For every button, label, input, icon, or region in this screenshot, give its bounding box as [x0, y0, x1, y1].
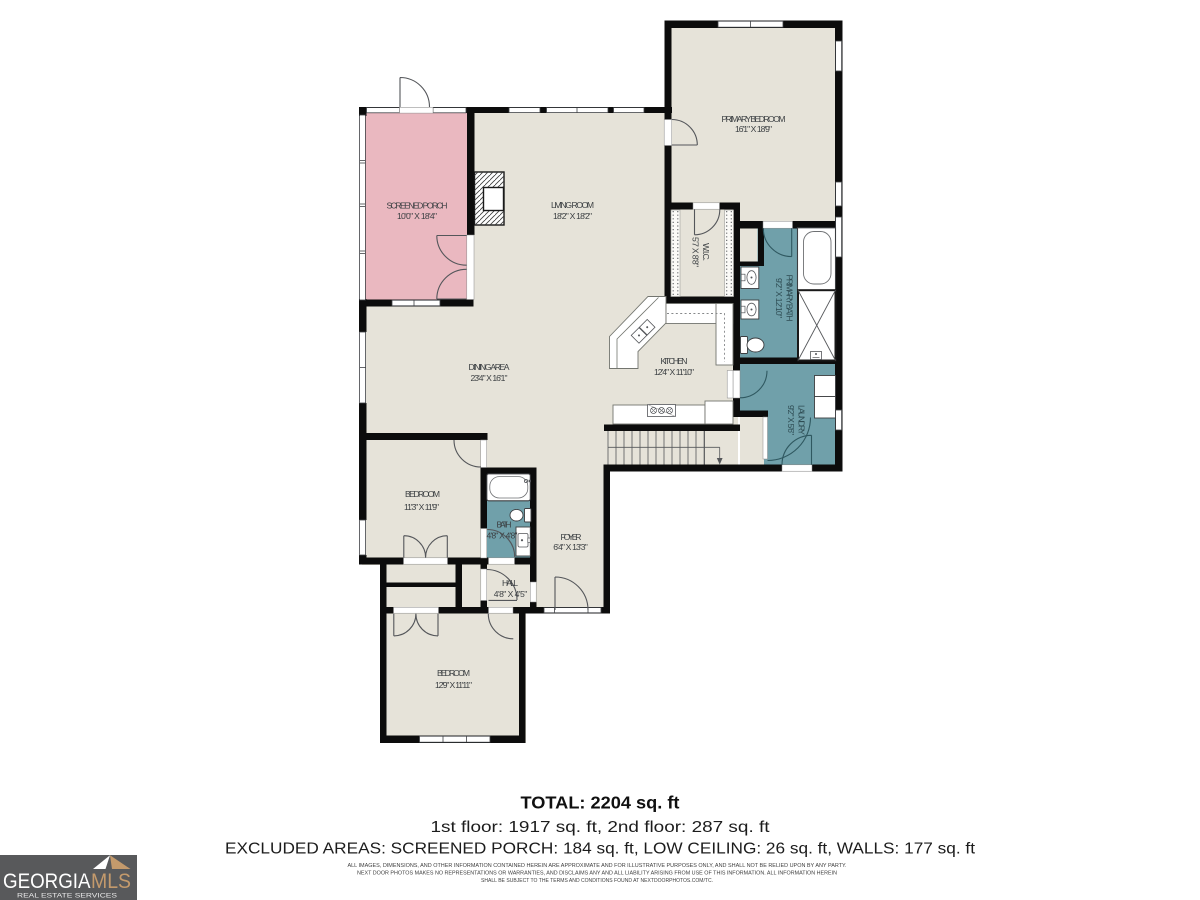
svg-text:NEXT DOOR PHOTOS MAKES NO REPR: NEXT DOOR PHOTOS MAKES NO REPRESENTATION… — [357, 871, 837, 877]
svg-text:16'1" X 18'9": 16'1" X 18'9" — [735, 124, 772, 134]
svg-text:SHALL BE SUBJECT TO THE TERMS: SHALL BE SUBJECT TO THE TERMS AND CONDIT… — [481, 878, 713, 884]
svg-text:9'2" X 12'10": 9'2" X 12'10" — [774, 278, 784, 318]
svg-text:4'8" X 4'5": 4'8" X 4'5" — [494, 589, 528, 599]
svg-text:6'4" X 13'3": 6'4" X 13'3" — [553, 542, 588, 552]
svg-text:LAUNDRY: LAUNDRY — [797, 405, 807, 435]
svg-text:KITCHEN: KITCHEN — [661, 356, 688, 366]
svg-text:BATH: BATH — [497, 520, 512, 530]
svg-text:SCREENED PORCH: SCREENED PORCH — [387, 201, 448, 211]
svg-text:PRIMARY BEDROOM: PRIMARY BEDROOM — [722, 114, 786, 124]
svg-text:MLS: MLS — [91, 869, 131, 893]
svg-text:PRIMARY BATH: PRIMARY BATH — [785, 275, 795, 322]
svg-text:5'7 X 8'8": 5'7 X 8'8" — [690, 237, 700, 267]
svg-text:REAL ESTATE SERVICES: REAL ESTATE SERVICES — [17, 893, 117, 900]
svg-text:18'2" X 18'2": 18'2" X 18'2" — [553, 211, 592, 221]
svg-text:9'2" X 5'6": 9'2" X 5'6" — [786, 405, 796, 435]
svg-text:BEDROOM: BEDROOM — [405, 489, 440, 499]
svg-text:23'4" X 16'1": 23'4" X 16'1" — [471, 373, 508, 383]
svg-text:BEDROOM: BEDROOM — [437, 668, 470, 678]
svg-text:TOTAL: 2204 sq. ft: TOTAL: 2204 sq. ft — [521, 793, 680, 813]
svg-text:11'3" X 11'9": 11'3" X 11'9" — [404, 502, 439, 512]
svg-text:HALL: HALL — [502, 578, 518, 588]
svg-text:EXCLUDED AREAS: SCREENED PORCH: EXCLUDED AREAS: SCREENED PORCH: 184 sq. … — [225, 841, 976, 858]
svg-text:GEORGIA: GEORGIA — [3, 869, 91, 893]
svg-text:10'0" X 18'4": 10'0" X 18'4" — [397, 211, 437, 221]
svg-text:1st floor: 1917 sq. ft, 2nd fl: 1st floor: 1917 sq. ft, 2nd floor: 287 s… — [431, 819, 771, 836]
svg-text:DINING AREA: DINING AREA — [469, 362, 510, 372]
svg-text:FOYER: FOYER — [561, 532, 582, 542]
svg-text:LIVING ROOM: LIVING ROOM — [551, 200, 594, 210]
svg-text:4'8" X 4'8": 4'8" X 4'8" — [487, 531, 518, 541]
svg-text:W.I.C.: W.I.C. — [701, 243, 711, 261]
svg-text:12'4" X 11'10": 12'4" X 11'10" — [654, 367, 694, 377]
svg-text:12'9" X 11'11": 12'9" X 11'11" — [435, 680, 472, 690]
svg-text:ALL IMAGES, DIMENSIONS, AND OT: ALL IMAGES, DIMENSIONS, AND OTHER INFORM… — [348, 863, 847, 869]
